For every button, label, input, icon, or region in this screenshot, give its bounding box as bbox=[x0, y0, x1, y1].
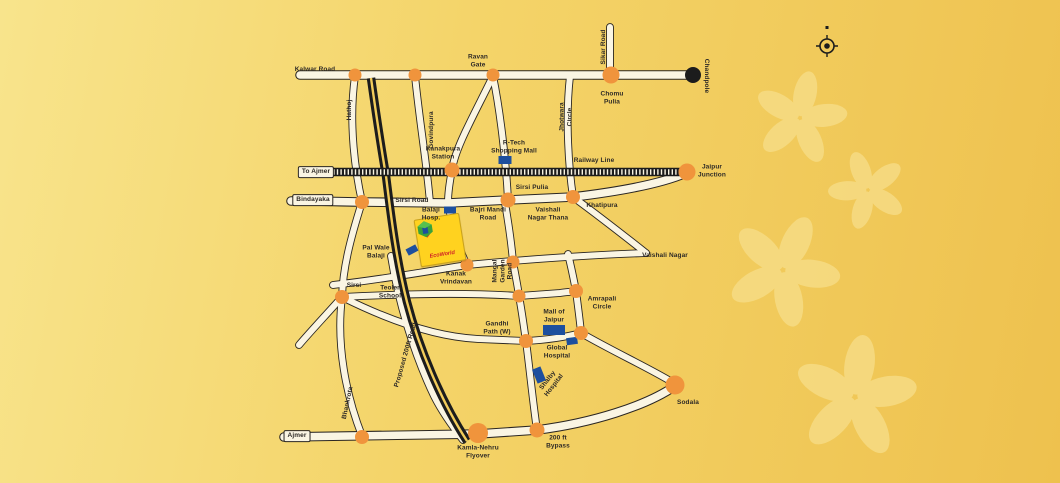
mall-of-jaipur-building bbox=[543, 325, 565, 335]
ravan-gate-dot bbox=[487, 69, 500, 82]
map-canvas bbox=[0, 0, 1060, 483]
compass-icon bbox=[816, 26, 838, 57]
sodala-link bbox=[581, 333, 672, 382]
ravan-gate-road bbox=[448, 76, 493, 203]
kalwar-hathoj-dot bbox=[349, 69, 362, 82]
location-map: EcoWorld Kalwar RoadRavan GateSikar Road… bbox=[0, 0, 1060, 483]
bhankrota-dot bbox=[355, 430, 369, 444]
kamla-nehru-flyover-dot bbox=[468, 423, 488, 443]
bypass-200ft-dot bbox=[530, 423, 545, 438]
khatipura-diagonal bbox=[573, 197, 646, 253]
sirsi-pulia-dot bbox=[501, 193, 516, 208]
gandhi-east-dot bbox=[574, 326, 588, 340]
kanakpura-station-dot bbox=[445, 163, 460, 178]
mangal-garden-mid-dot bbox=[513, 290, 526, 303]
sirsi-dot bbox=[335, 290, 349, 304]
rtech-shopping-mall-building bbox=[499, 156, 512, 164]
jaipur-junction-dot bbox=[679, 164, 696, 181]
kalwar-govindpura-dot bbox=[409, 69, 422, 82]
building-icon bbox=[415, 218, 436, 241]
chandpole-dot bbox=[685, 67, 701, 83]
govindpura-road bbox=[415, 76, 430, 203]
project-logo-label: EcoWorld bbox=[420, 248, 464, 261]
pal-wale-balaji-building bbox=[406, 244, 419, 255]
sirsi-sw-stub bbox=[299, 297, 342, 345]
sirsi-west-dot bbox=[355, 195, 369, 209]
amrapali-circle-dot bbox=[569, 284, 583, 298]
hathoj-road bbox=[352, 76, 362, 202]
chomu-pulia-dot bbox=[603, 67, 620, 84]
khatipura-dot bbox=[566, 190, 580, 204]
mangal-garden-road bbox=[505, 203, 537, 430]
sodala-dot bbox=[666, 376, 685, 395]
project-logo: EcoWorld bbox=[414, 213, 467, 268]
gandhi-path-dot bbox=[519, 334, 533, 348]
mangal-garden-upper-dot bbox=[507, 256, 520, 269]
